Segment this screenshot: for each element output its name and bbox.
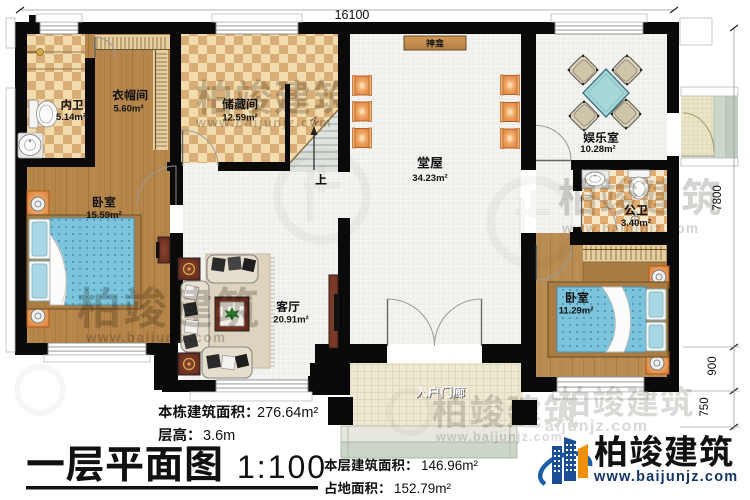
svg-text:146.96m²: 146.96m² bbox=[421, 458, 479, 473]
svg-text:5.60m²: 5.60m² bbox=[113, 104, 143, 115]
svg-text:www.baijunjz.com: www.baijunjz.com bbox=[85, 330, 227, 345]
svg-text:276.64m²: 276.64m² bbox=[257, 405, 318, 421]
svg-text:750: 750 bbox=[699, 397, 711, 416]
svg-text:www.baijunjz.com: www.baijunjz.com bbox=[561, 221, 699, 236]
svg-text:aijunjz.com: aijunjz.com bbox=[545, 418, 649, 435]
svg-text:1:100: 1:100 bbox=[237, 449, 327, 485]
svg-text:3.6m: 3.6m bbox=[203, 428, 235, 444]
svg-text:20.91m²: 20.91m² bbox=[273, 315, 308, 326]
svg-text:152.79m²: 152.79m² bbox=[394, 481, 452, 496]
svg-text:16100: 16100 bbox=[335, 8, 370, 22]
svg-text:34.23m²: 34.23m² bbox=[412, 173, 447, 184]
svg-text:10.28m²: 10.28m² bbox=[580, 144, 615, 155]
svg-text:15.59m²: 15.59m² bbox=[86, 210, 121, 221]
svg-text:11.29m²: 11.29m² bbox=[559, 306, 594, 317]
svg-text:5.14m²: 5.14m² bbox=[56, 112, 86, 123]
svg-text:www.baijunjz.com: www.baijunjz.com bbox=[593, 469, 738, 485]
svg-text:www.baijunjz.com: www.baijunjz.com bbox=[195, 115, 332, 130]
svg-text:www.baijunjz.com: www.baijunjz.com bbox=[435, 430, 563, 444]
svg-text:900: 900 bbox=[707, 356, 719, 375]
